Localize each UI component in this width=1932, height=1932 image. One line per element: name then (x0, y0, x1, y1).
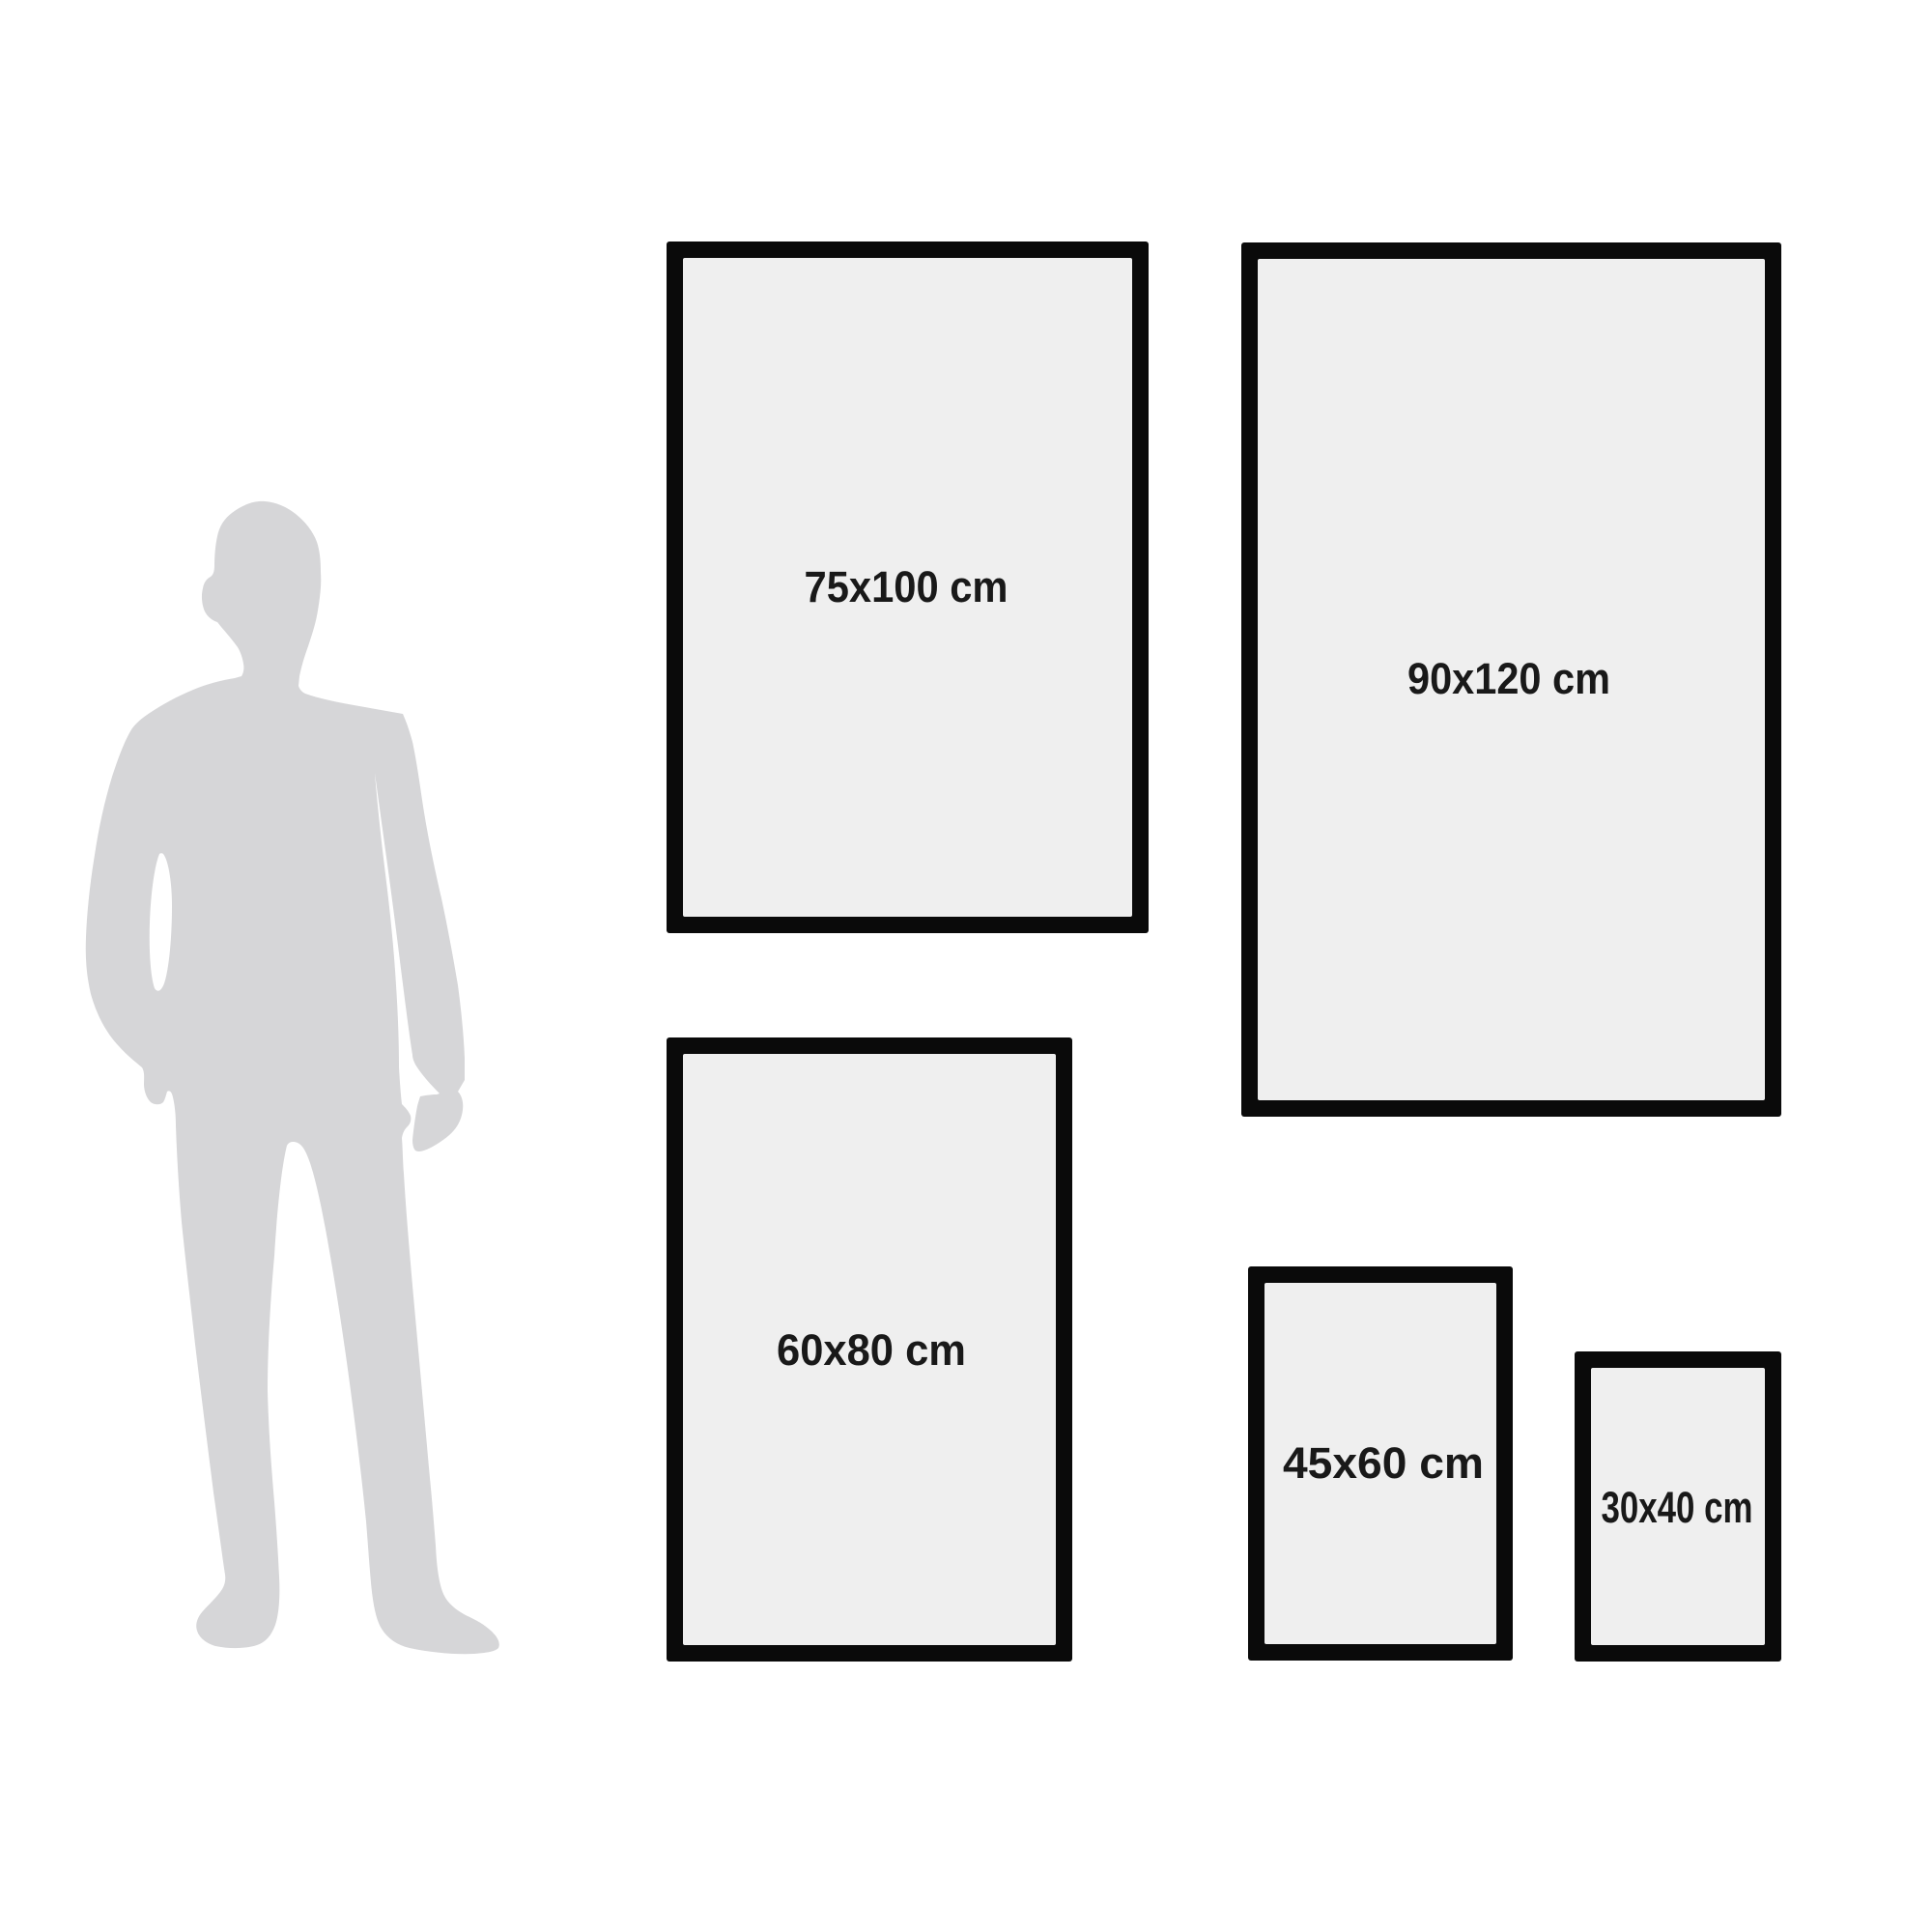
svg-text:75x100 cm: 75x100 cm (805, 562, 1009, 611)
svg-text:60x80 cm: 60x80 cm (777, 1325, 966, 1375)
svg-text:90x120 cm: 90x120 cm (1407, 654, 1610, 703)
svg-text:30x40 cm: 30x40 cm (1602, 1483, 1753, 1532)
svg-text:45x60 cm: 45x60 cm (1283, 1438, 1484, 1488)
